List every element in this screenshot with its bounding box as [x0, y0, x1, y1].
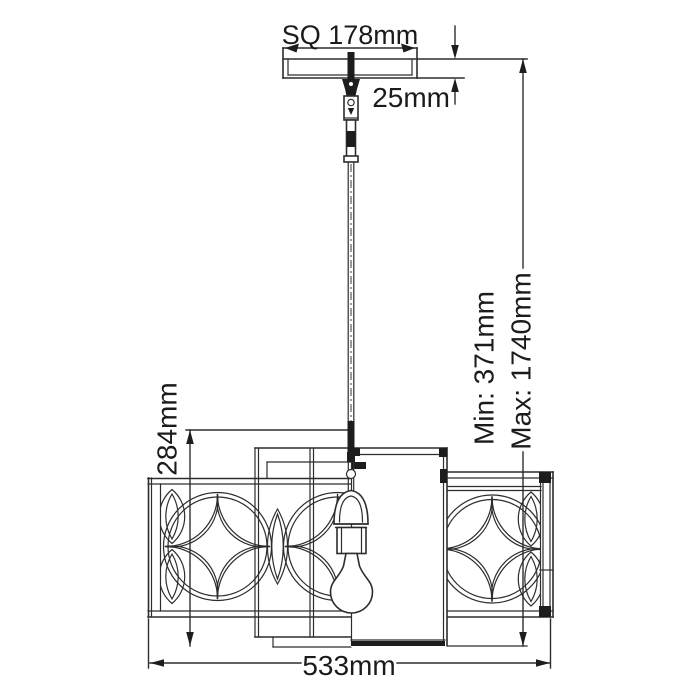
- rod-collar: [344, 156, 358, 162]
- fixture-diagram: SQ 178mm 25mm Min: 371mm Max: 1740mm 284…: [0, 0, 700, 700]
- circle-fretwork-pattern-right: [438, 492, 546, 606]
- suspension-rod: [342, 52, 360, 452]
- swivel-joint: [342, 79, 360, 96]
- diagram-canvas: SQ 178mm 25mm Min: 371mm Max: 1740mm 284…: [0, 0, 700, 700]
- dim-overall-width: 533mm: [149, 619, 551, 681]
- fretwork-right-panel: [438, 472, 553, 617]
- socket-loop: [347, 470, 356, 479]
- suspension-max-label: Max: 1740mm: [505, 272, 536, 449]
- rod-lower-fitting: [348, 421, 355, 452]
- ceiling-canopy: [283, 48, 527, 78]
- shade-height-label: 284mm: [151, 382, 182, 475]
- suspension-min-label: Min: 371mm: [468, 291, 499, 445]
- stem-through-canopy: [348, 52, 355, 79]
- dim-canopy-width: SQ 178mm: [282, 20, 419, 53]
- dim-suspension-height: Min: 371mm Max: 1740mm: [468, 59, 536, 646]
- canopy-drop-label: 25mm: [372, 82, 450, 113]
- canopy-width-label: SQ 178mm: [282, 20, 419, 50]
- overall-width-label: 533mm: [302, 650, 395, 681]
